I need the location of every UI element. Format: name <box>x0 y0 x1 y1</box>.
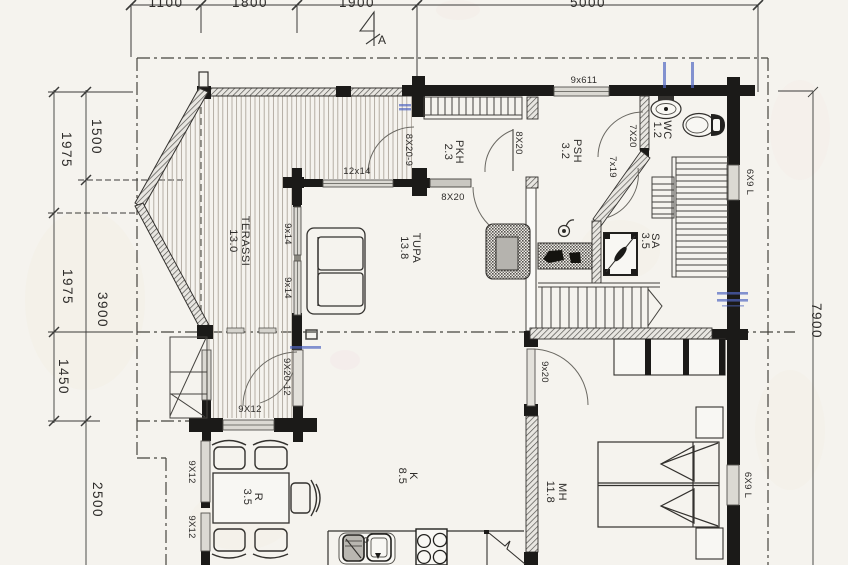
svg-text:2.3: 2.3 <box>442 144 454 161</box>
svg-text:9x611: 9x611 <box>571 75 598 86</box>
svg-text:8X20-9: 8X20-9 <box>403 134 414 166</box>
svg-text:7x19: 7x19 <box>607 156 618 178</box>
svg-text:1450: 1450 <box>56 359 71 395</box>
svg-text:13.0: 13.0 <box>227 229 239 252</box>
svg-text:3.2: 3.2 <box>559 143 571 160</box>
svg-text:1800: 1800 <box>232 0 268 10</box>
svg-text:A: A <box>378 33 386 47</box>
svg-text:12x14: 12x14 <box>343 166 370 177</box>
svg-text:1975: 1975 <box>60 269 75 305</box>
svg-text:2500: 2500 <box>90 482 105 518</box>
svg-text:6X9 L: 6X9 L <box>744 169 755 195</box>
svg-text:9x14: 9x14 <box>282 223 293 245</box>
svg-text:9X12: 9X12 <box>186 515 197 538</box>
svg-text:MH: MH <box>556 483 568 501</box>
svg-text:PSH: PSH <box>571 139 583 163</box>
svg-text:1975: 1975 <box>59 132 74 168</box>
svg-text:8X20: 8X20 <box>513 131 524 154</box>
svg-text:6X9 L: 6X9 L <box>742 472 753 498</box>
svg-text:11.8: 11.8 <box>544 481 556 504</box>
svg-text:TUPA: TUPA <box>410 233 422 264</box>
svg-text:TERASSI: TERASSI <box>239 216 251 267</box>
svg-text:13.8: 13.8 <box>398 236 410 259</box>
svg-text:3.5: 3.5 <box>639 233 651 250</box>
svg-text:5000: 5000 <box>570 0 606 10</box>
svg-text:9X12: 9X12 <box>238 404 261 415</box>
svg-text:9X12: 9X12 <box>186 460 197 483</box>
svg-text:3.5: 3.5 <box>241 489 253 506</box>
svg-text:7900: 7900 <box>809 303 824 339</box>
svg-text:8.5: 8.5 <box>396 468 408 485</box>
svg-text:8X20: 8X20 <box>441 192 464 203</box>
svg-text:9x14: 9x14 <box>282 277 293 299</box>
svg-text:3900: 3900 <box>95 292 110 328</box>
svg-text:7X20: 7X20 <box>627 124 638 147</box>
svg-text:1500: 1500 <box>89 119 104 155</box>
svg-text:1900: 1900 <box>339 0 375 10</box>
svg-text:9X20-12: 9X20-12 <box>281 358 292 396</box>
svg-text:1100: 1100 <box>148 0 183 10</box>
svg-text:9x20: 9x20 <box>539 361 550 383</box>
svg-text:1.2: 1.2 <box>651 122 663 139</box>
